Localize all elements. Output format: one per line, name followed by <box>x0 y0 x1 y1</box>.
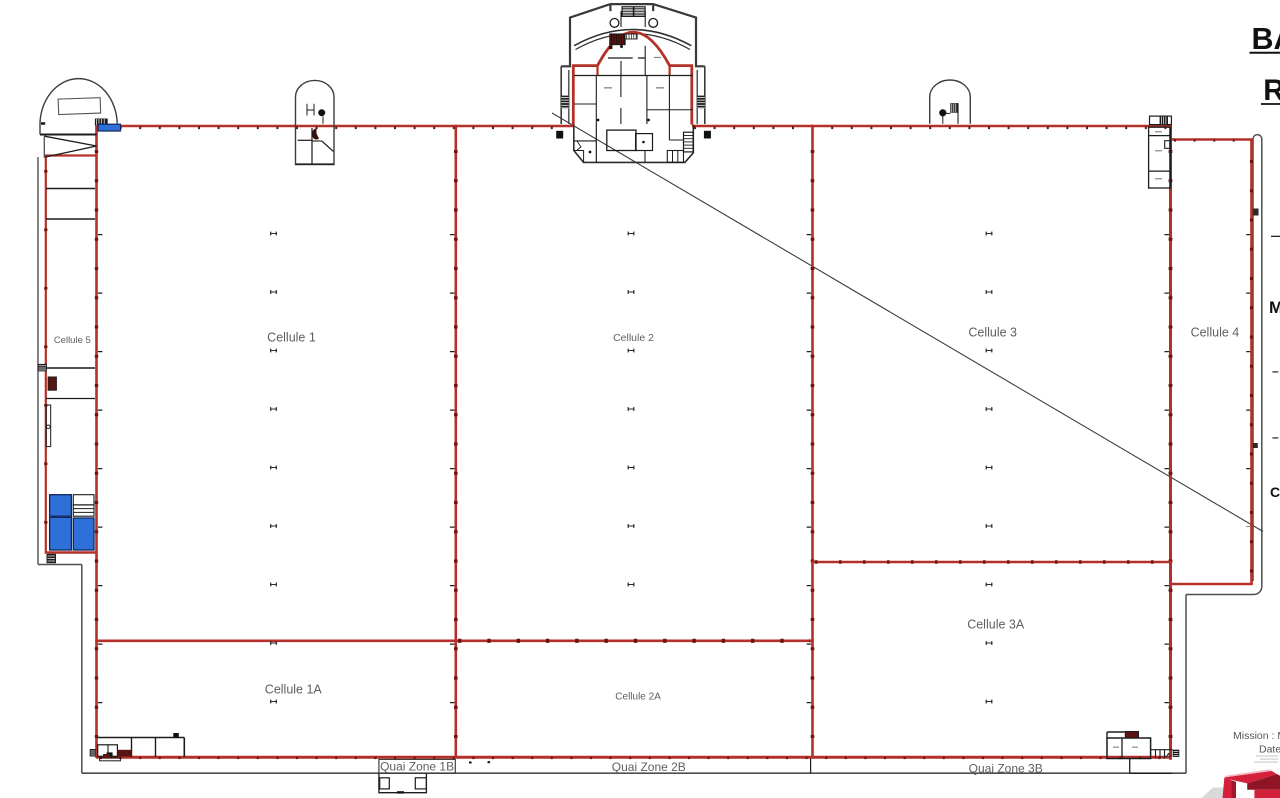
svg-text:Cellule 5: Cellule 5 <box>54 335 91 346</box>
svg-text:Quai Zone 1B: Quai Zone 1B <box>380 760 454 774</box>
svg-text:Cellule 2: Cellule 2 <box>613 332 654 344</box>
svg-text:Cellule 2A: Cellule 2A <box>615 692 661 703</box>
svg-text:BA: BA <box>1252 22 1280 56</box>
svg-text:Mission : M: Mission : M <box>1233 730 1280 742</box>
svg-text:–: – <box>1272 430 1279 444</box>
svg-text:C: C <box>1270 484 1280 500</box>
svg-text:Cellule 1: Cellule 1 <box>267 331 316 345</box>
svg-text:R: R <box>1263 74 1280 107</box>
svg-text:—: — <box>1271 228 1280 243</box>
svg-text:Date: Date <box>1259 744 1280 756</box>
svg-text:Cellule 1A: Cellule 1A <box>265 682 323 696</box>
svg-text:Cellule 3A: Cellule 3A <box>967 618 1025 632</box>
svg-text:Quai Zone 3B: Quai Zone 3B <box>969 761 1043 775</box>
svg-text:–: – <box>1272 364 1279 378</box>
svg-text:Cellule 3: Cellule 3 <box>968 326 1017 340</box>
svg-text:M: M <box>1269 298 1280 317</box>
svg-text:Quai Zone 2B: Quai Zone 2B <box>612 760 686 774</box>
svg-text:Cellule 4: Cellule 4 <box>1191 326 1240 340</box>
